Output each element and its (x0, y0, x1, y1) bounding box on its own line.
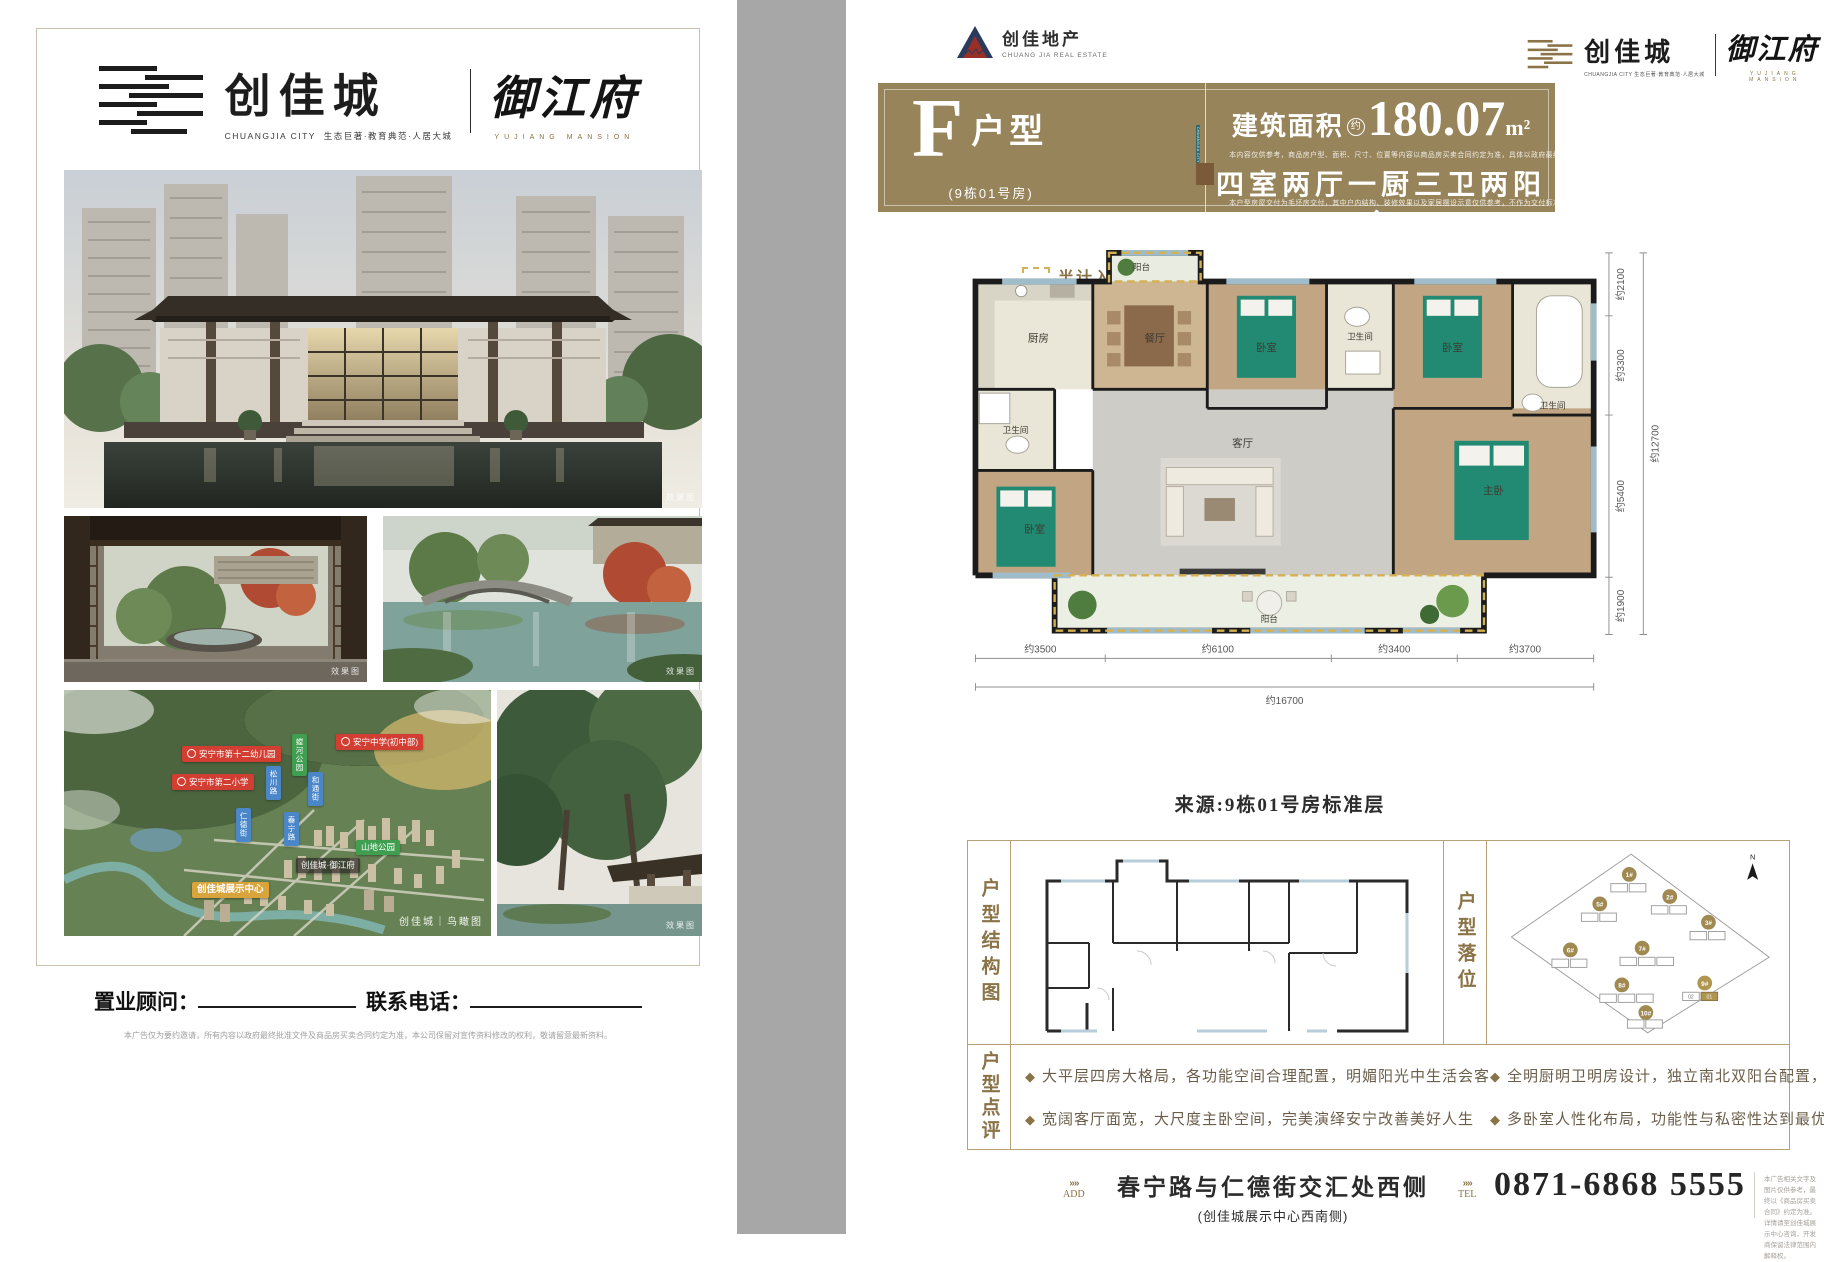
building-badge: 8# (1618, 982, 1626, 989)
developer-name-cn: 创佳地产 (1002, 25, 1108, 50)
brand-name-cn: 创佳城 (225, 60, 453, 126)
diamond-bullet-icon: ◆ (1490, 1069, 1501, 1084)
right-page: 创佳地产 CHUANG JIA REAL ESTATE 创佳城 CHUANGJI… (846, 0, 1824, 1234)
brand-stripes-icon (95, 62, 207, 140)
address-marker: »» ADD (1063, 1178, 1085, 1200)
mansion-name-cn: 御江府 (1726, 26, 1824, 68)
building-badge: 5# (1596, 901, 1604, 908)
school-label: 安宁市第二小学 (172, 774, 254, 790)
project-label: 创佳城·御江府 (296, 858, 360, 873)
room-label: 客厅 (1232, 437, 1253, 450)
review-point: ◆全明厨明卫明房设计，独立南北双阳台配置，尽显居家生活品质 (1490, 1065, 1824, 1086)
dimension-label: 约3300 (1614, 349, 1627, 382)
hero-rendering-image: 效果图 (64, 170, 702, 508)
photo-tag: 效果图 (666, 666, 696, 677)
area-value: 180.07 (1368, 90, 1506, 146)
logo-divider (470, 69, 471, 133)
footer-divider (1754, 1172, 1755, 1218)
structure-label: 户型结构图 (976, 878, 1003, 1008)
unit-type-label: 户型 (971, 104, 1047, 167)
dimension-label: 约3700 (1509, 643, 1542, 656)
dimension-label: 约16700 (1266, 694, 1304, 707)
school-label: 安宁市第十二幼儿园 (182, 746, 281, 762)
courtyard-image: 效果图 (64, 516, 367, 682)
dimension-label: 约1900 (1614, 589, 1627, 622)
dimension-label: 约12700 (1649, 424, 1662, 462)
street-label: 春宁路 (284, 812, 299, 846)
review-content-cell: ◆大平层四房大格局，各功能空间合理配置，明媚阳光中生活会客 ◆全明厨明卫明房设计… (1011, 1045, 1789, 1149)
arrow-chevrons-icon: »» (1063, 1178, 1085, 1189)
school-dot-icon (341, 737, 350, 746)
building-badge: 6# (1566, 947, 1574, 954)
hero-rendering-art (64, 170, 702, 508)
room-label: 卫生间 (1540, 399, 1566, 410)
review-label-cell: 户型点评 (968, 1045, 1011, 1149)
structure-plan-image (1027, 853, 1427, 1033)
position-label: 户型落位 (1452, 891, 1479, 995)
garden-image: 效果图 (383, 516, 702, 682)
structure-plan-cell (1011, 841, 1444, 1044)
room-label: 厨房 (1028, 332, 1049, 345)
photo-tag: 效果图 (666, 492, 696, 503)
review-point: ◆宽阔客厅面宽，大尺度主卧空间，完美演绎安宁改善美好人生 (1025, 1108, 1490, 1129)
structure-label-cell: 户型结构图 (968, 841, 1011, 1044)
room-label: 阳台 (1133, 261, 1150, 272)
band-ribbon-bottom (1196, 163, 1214, 185)
room-label: 卫生间 (1003, 424, 1029, 435)
arrow-chevrons-icon: »» (1458, 1178, 1476, 1189)
building-badge: 2# (1666, 894, 1674, 901)
right-logo-lockup: 创佳城 CHUANGJIA CITY 生态巨著·教育典范·人居大城 御江府 YU… (1526, 26, 1824, 83)
area-label: 建筑面积 (1232, 112, 1344, 141)
map-watermark: 创佳城｜鸟瞰图 (399, 913, 483, 928)
address-text: 春宁路与仁德街交汇处西侧 (1098, 1168, 1448, 1202)
unit-letter: F (912, 91, 963, 167)
developer-name-block: 创佳地产 CHUANG JIA REAL ESTATE (1002, 25, 1108, 59)
park-label: 山地公园 (356, 840, 400, 855)
unit-number: 02 (1688, 994, 1694, 1000)
aerial-map-art (64, 690, 491, 936)
site-plan-cell: N 02 01 1# (1487, 841, 1788, 1044)
unit-letter-group: F 户型 (912, 91, 1047, 167)
dimension-label: 约5400 (1614, 480, 1627, 513)
brand-name-sub: CHUANGJIA CITY 生态巨著·教育典范·人居大城 (225, 130, 453, 142)
logo-divider (1715, 34, 1716, 76)
building-badge: 7# (1638, 945, 1646, 952)
street-label: 和通街 (308, 772, 323, 806)
room-label: 卫生间 (1347, 331, 1373, 342)
mansion-name-cn: 御江府 (489, 62, 639, 128)
mansion-name-en: YUJIANG MANSION (1726, 71, 1824, 83)
building-badge: 9# (1701, 980, 1709, 987)
consultant-label: 置业顾问： (94, 986, 199, 1016)
floorplan-image: 阳台 厨房 餐厅 卧室 卫生间 卧室 卫生间 卫生间 卧室 客厅 主卧 阳台 约… (964, 246, 1670, 711)
review-label: 户型点评 (976, 1051, 1003, 1143)
consultant-blank-line (198, 986, 356, 1008)
dimension-label: 约3400 (1378, 643, 1411, 656)
floorplan-source: 来源:9栋01号房标准层 (1100, 790, 1460, 817)
unit-number-highlight: 01 (1706, 994, 1712, 1000)
svg-text:N: N (1749, 852, 1754, 861)
room-label: 餐厅 (1144, 332, 1165, 345)
area-unit: m² (1505, 115, 1530, 140)
sales-center-label: 创佳城展示中心 (192, 882, 269, 898)
landscape-detail-art (497, 690, 702, 936)
site-plan-image: N 02 01 1# (1493, 847, 1783, 1039)
school-dot-icon (177, 777, 186, 786)
aerial-map-image: 安宁市第十二幼儿园 安宁市第二小学 安宁中学(初中部) 螳河公园 松川路 和通街… (64, 690, 491, 936)
info-table: 户型结构图 户型落位 (967, 840, 1790, 1150)
photo-tag: 效果图 (666, 920, 696, 931)
street-label: 松川路 (266, 766, 281, 800)
unit-header-band: F 户型 (9栋01号房) CHUANGJIA CITY 建筑面积约180.07… (878, 83, 1555, 212)
brand-name-block: 创佳城 CHUANGJIA CITY 生态巨著·教育典范·人居大城 (1584, 32, 1705, 78)
left-page: 创佳城 CHUANGJIA CITY 生态巨著·教育典范·人居大城 御江府 YU… (0, 0, 737, 1234)
north-arrow-icon: N (1747, 852, 1758, 879)
building-badge: 3# (1704, 920, 1712, 927)
diamond-bullet-icon: ◆ (1490, 1112, 1501, 1127)
review-point: ◆大平层四房大格局，各功能空间合理配置，明媚阳光中生活会客 (1025, 1065, 1490, 1086)
left-logo-lockup: 创佳城 CHUANGJIA CITY 生态巨著·教育典范·人居大城 御江府 YU… (36, 60, 698, 142)
approx-circle: 约 (1347, 118, 1365, 136)
diamond-bullet-icon: ◆ (1025, 1112, 1036, 1127)
position-label-cell: 户型落位 (1444, 841, 1487, 1044)
mansion-name-block: 御江府 YUJIANG MANSION (1726, 26, 1824, 83)
building-badge: 1# (1625, 872, 1633, 879)
area-note: 本内容仅供参考，商品房户型、面积、尺寸、位置等内容以商品房买卖合同约定为准，具体… (1229, 149, 1533, 159)
dimension-label: 约2100 (1614, 268, 1627, 301)
dimension-label: 约3500 (1024, 643, 1057, 656)
developer-logo-icon (956, 24, 994, 60)
room-label: 卧室 (1256, 341, 1277, 354)
tel-label: TEL (1458, 1189, 1476, 1200)
room-label: 主卧 (1483, 484, 1504, 497)
dimension-label: 约6100 (1202, 643, 1235, 656)
diamond-bullet-icon: ◆ (1025, 1069, 1036, 1084)
contact-phone-blank-line (470, 986, 642, 1008)
address-block: 春宁路与仁德街交汇处西侧 (创佳城展示中心西南侧) (1098, 1168, 1448, 1225)
street-label: 仁德街 (236, 808, 251, 842)
band-ribbon-top: CHUANGJIA CITY (1196, 125, 1200, 163)
brand-name-sub: CHUANGJIA CITY 生态巨著·教育典范·人居大城 (1584, 71, 1705, 78)
floorplan-figure: 阳台 厨房 餐厅 卧室 卫生间 卧室 卫生间 卫生间 卧室 客厅 主卧 阳台 约… (964, 246, 1670, 711)
add-label: ADD (1063, 1189, 1085, 1200)
phone-number: 0871-6868 5555 (1494, 1166, 1746, 1204)
room-label: 卧室 (1024, 522, 1045, 535)
address-sub-text: (创佳城展示中心西南侧) (1098, 1206, 1448, 1225)
brand-name-cn: 创佳城 (1584, 32, 1705, 69)
developer-logo: 创佳地产 CHUANG JIA REAL ESTATE (956, 24, 1108, 60)
footer-disclaimer-line: 本广告相关文字及图片仅供参考，最终以《商品房买卖合同》约定为准。 (1764, 1174, 1816, 1218)
developer-name-en: CHUANG JIA REAL ESTATE (1002, 52, 1108, 59)
contact-phone-label: 联系电话： (366, 986, 471, 1016)
school-dot-icon (187, 749, 196, 758)
band-ribbon: CHUANGJIA CITY (1196, 125, 1214, 185)
mansion-name-en: YUJIANG MANSION (489, 134, 639, 141)
unit-sub-label: (9栋01号房) (906, 183, 1076, 202)
page-gutter (737, 0, 846, 1234)
school-label: 安宁中学(初中部) (336, 734, 423, 750)
brand-stripes-icon (1526, 36, 1574, 74)
layout-note: 本户型房屋交付为毛坯房交付，其中户内结构、装修效果以及家居摆设示意仅供参考，不作… (1229, 197, 1533, 207)
area-line: 建筑面积约180.07m² (1216, 93, 1546, 143)
photo-tag: 效果图 (331, 666, 361, 677)
left-page-disclaimer: 本广告仅为要约邀请，所有内容以政府最终批准文件及商品房买卖合同约定为准，本公司保… (60, 1030, 676, 1041)
footer-disclaimer-line: 详情请至创佳城展示中心咨询，开发商保留法律范围内解释权。 (1764, 1218, 1816, 1262)
room-label: 阳台 (1261, 613, 1278, 624)
footer-disclaimer: 本广告相关文字及图片仅供参考，最终以《商品房买卖合同》约定为准。 详情请至创佳城… (1764, 1174, 1816, 1262)
brand-name-block: 创佳城 CHUANGJIA CITY 生态巨著·教育典范·人居大城 (225, 60, 453, 142)
landscape-detail-image: 效果图 (497, 690, 702, 936)
garden-art (383, 516, 702, 682)
phone-marker: »» TEL (1458, 1178, 1476, 1200)
building-badge: 10# (1640, 1010, 1651, 1017)
room-label: 卧室 (1442, 341, 1463, 354)
park-label: 螳河公园 (292, 734, 307, 776)
mansion-name-block: 御江府 YUJIANG MANSION (489, 62, 639, 141)
courtyard-art (64, 516, 367, 682)
review-point: ◆多卧室人性化布局，功能性与私密性达到最优，阖绰方便岂止一点点 (1490, 1108, 1824, 1129)
